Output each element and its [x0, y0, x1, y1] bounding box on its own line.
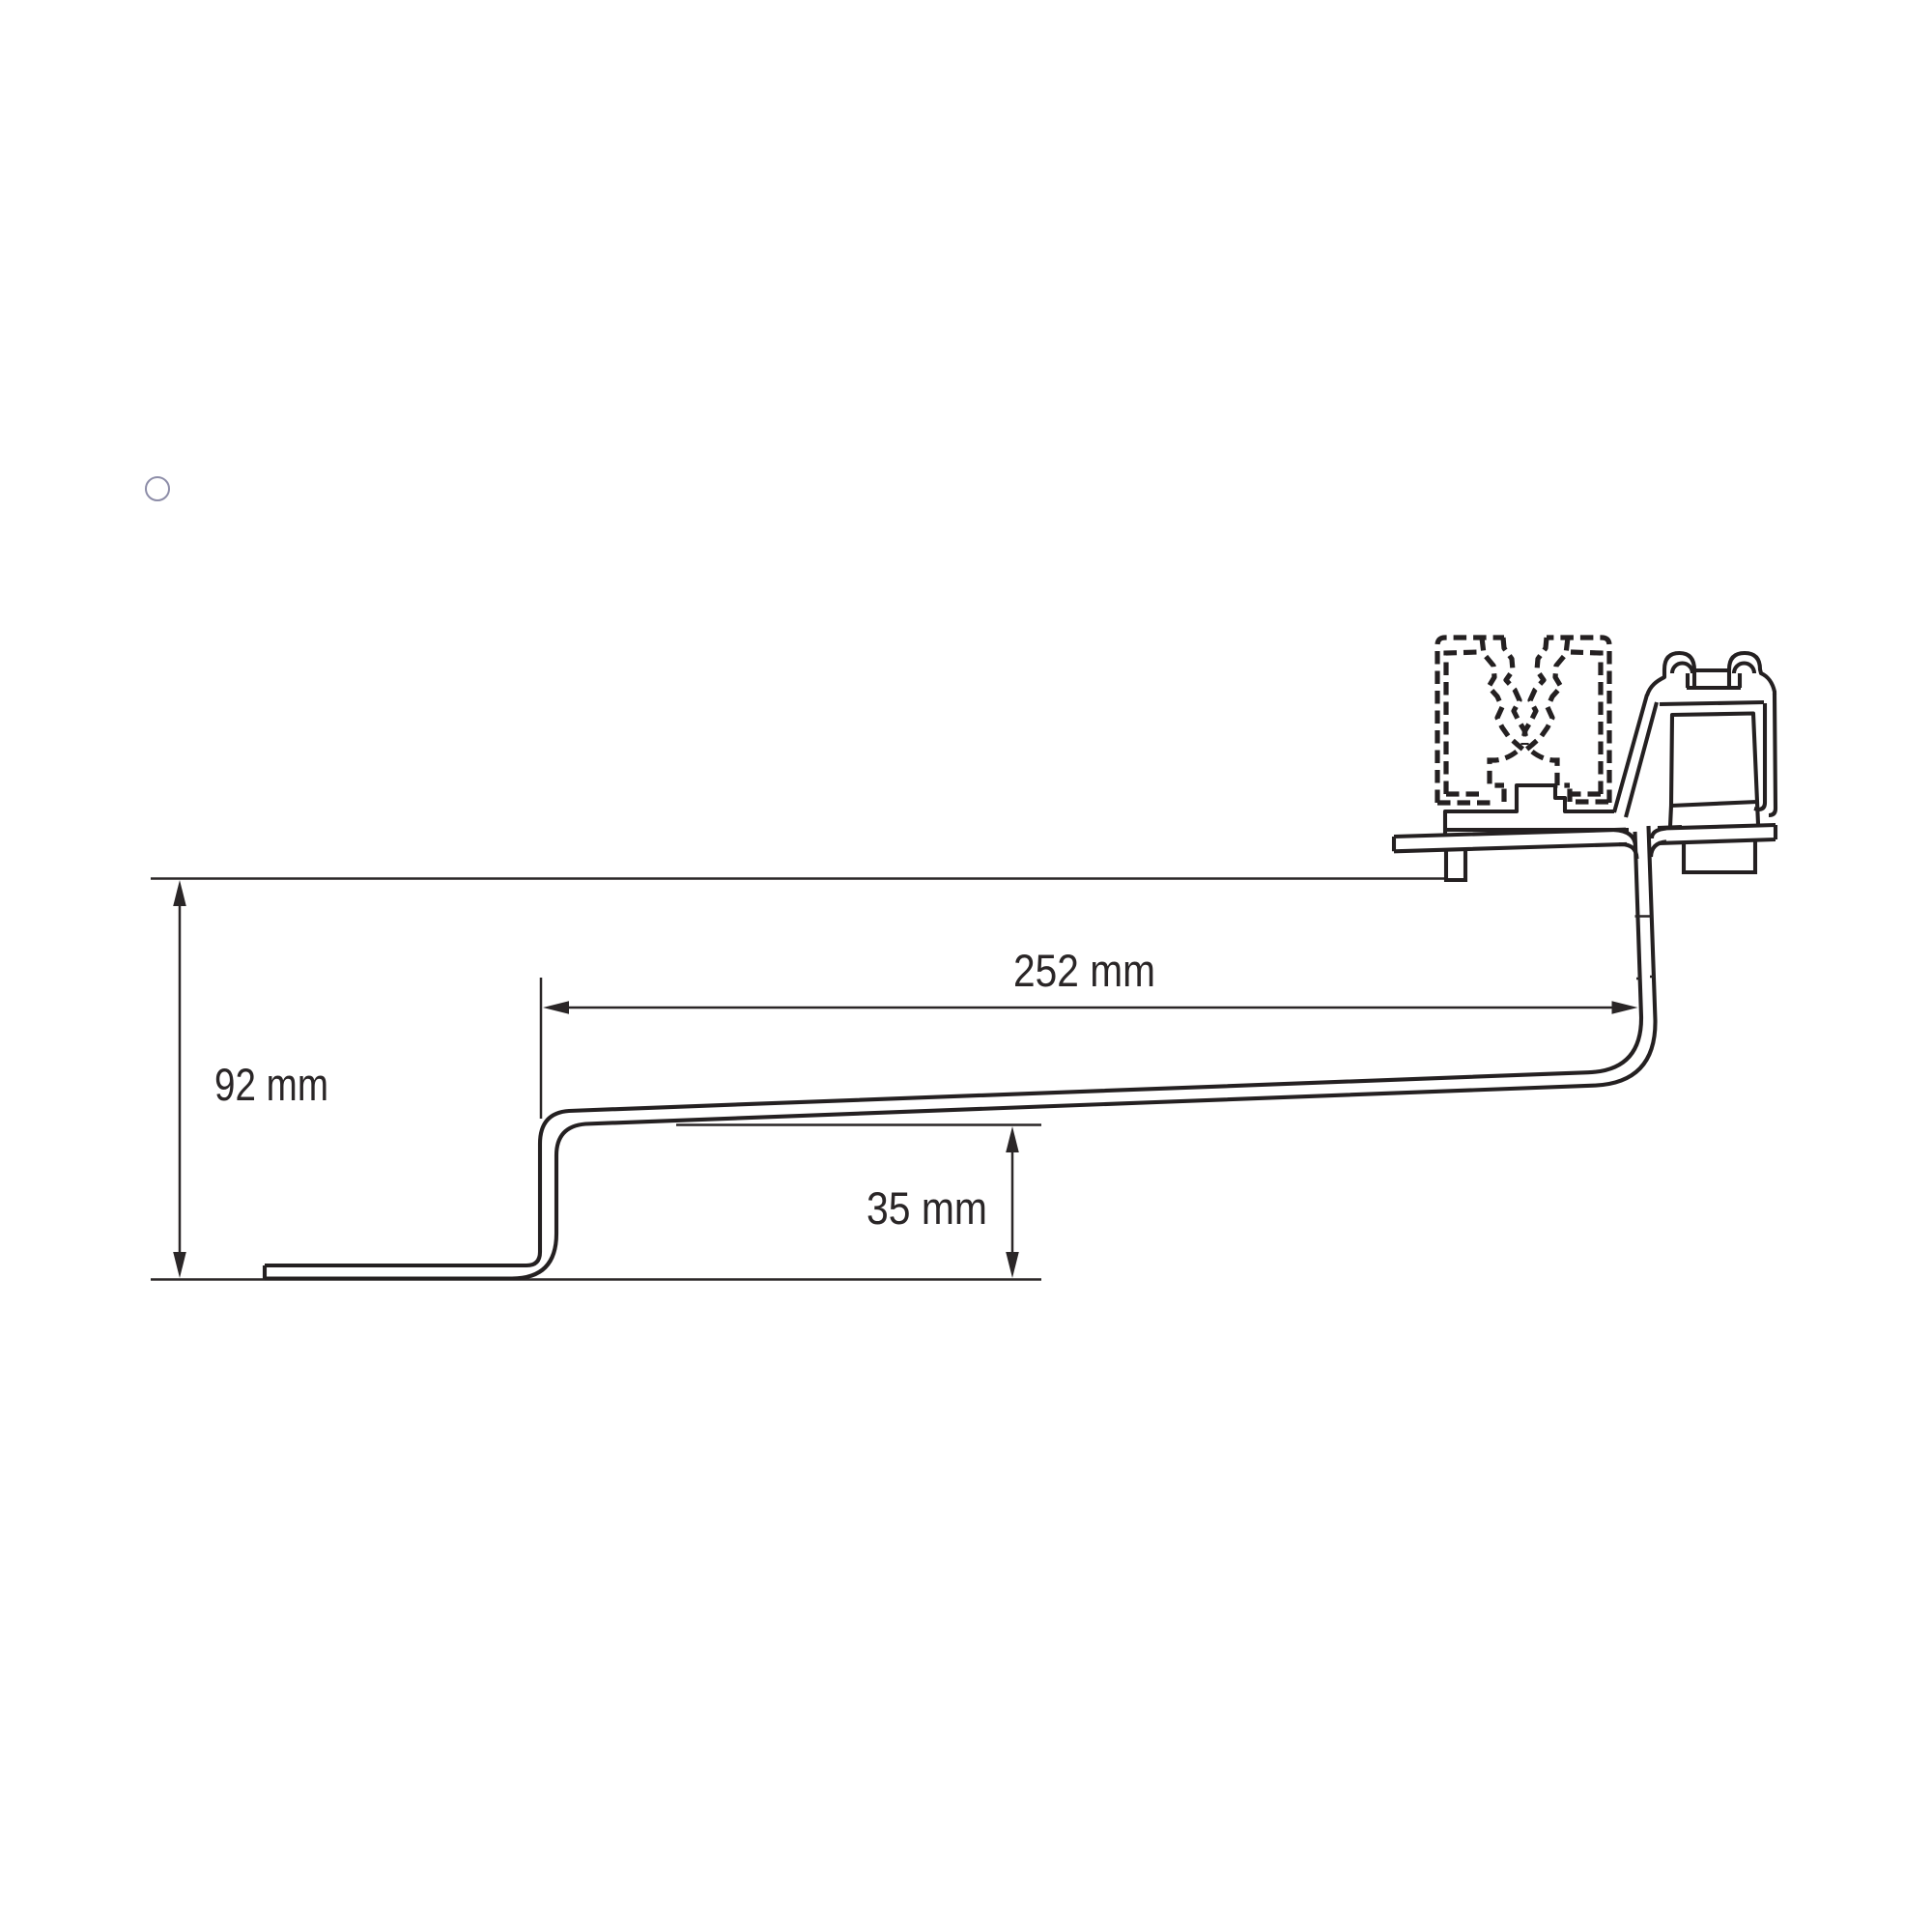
- svg-text:252 mm: 252 mm: [1013, 945, 1155, 996]
- svg-text:92 mm: 92 mm: [214, 1059, 328, 1110]
- svg-text:35 mm: 35 mm: [867, 1182, 987, 1234]
